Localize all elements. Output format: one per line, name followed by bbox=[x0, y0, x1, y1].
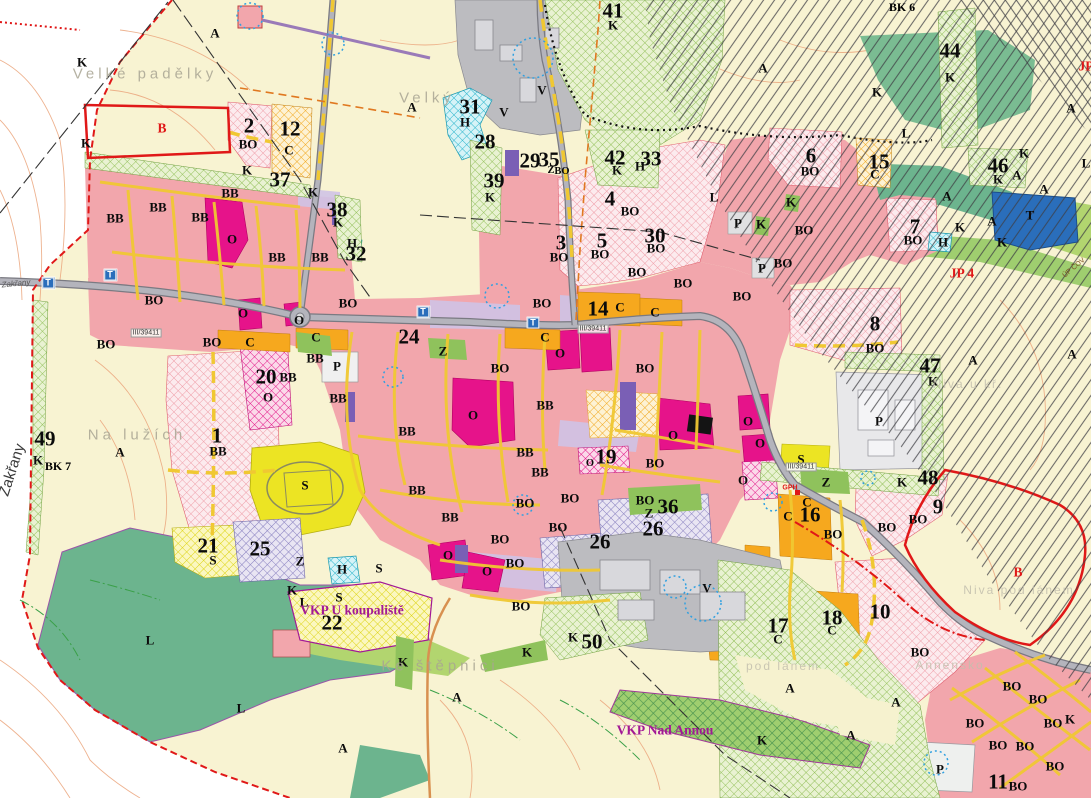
map-label-jp: JP bbox=[1079, 59, 1091, 73]
map-label-bo: BO bbox=[533, 297, 552, 310]
map-label-z: Z bbox=[547, 166, 554, 177]
map-label-bo: BO bbox=[795, 224, 814, 237]
map-label-bo: BO bbox=[866, 342, 885, 355]
map-label-bo: BO bbox=[550, 251, 569, 264]
map-label-jp-4: JP 4 bbox=[950, 266, 974, 280]
map-label-k: K bbox=[786, 196, 796, 209]
map-label-vkp-nad-annou: VKP Nad Annou bbox=[617, 723, 714, 737]
map-label-bb: BB bbox=[329, 392, 346, 405]
map-label-c: C bbox=[802, 496, 811, 509]
map-label-12: 12 bbox=[280, 119, 301, 140]
map-label-c: C bbox=[870, 168, 879, 181]
map-label-bb: BB bbox=[516, 446, 533, 459]
map-label-bb: BB bbox=[149, 201, 166, 214]
map-label-s: S bbox=[209, 554, 216, 567]
map-label-k: K bbox=[1065, 713, 1075, 726]
map-label-k: K bbox=[612, 164, 622, 177]
map-label-bo: BO bbox=[1029, 693, 1048, 706]
map-label-c: C bbox=[827, 624, 836, 637]
map-label-bo: BO bbox=[904, 234, 923, 247]
map-label-a: A bbox=[987, 215, 996, 228]
map-label-bb: BB bbox=[306, 352, 323, 365]
map-label-49: 49 bbox=[35, 429, 56, 450]
map-label-bo: BO bbox=[636, 362, 655, 375]
map-label-a: A bbox=[846, 729, 855, 742]
map-label-c: C bbox=[773, 633, 782, 646]
map-label-c: C bbox=[540, 331, 549, 344]
map-label-k: K bbox=[608, 19, 618, 32]
map-label-k: K bbox=[333, 216, 343, 229]
map-label-bb: BB bbox=[221, 187, 238, 200]
map-label-o: O bbox=[238, 307, 248, 320]
map-label-t: T bbox=[1026, 209, 1035, 222]
map-label-37: 37 bbox=[270, 170, 291, 191]
map-label-niva-u-kř-: Niva u kř. bbox=[933, 378, 1004, 390]
map-label-bo: BO bbox=[1044, 717, 1063, 730]
map-label-14: 14 bbox=[588, 299, 609, 320]
map-label-z: Z bbox=[822, 476, 831, 489]
map-label-a: A bbox=[968, 354, 977, 367]
map-label-p: P bbox=[936, 763, 944, 776]
map-label-k: K bbox=[756, 218, 766, 231]
map-label-velké-padělky: Velké padělky bbox=[73, 67, 218, 82]
map-label-o: O bbox=[738, 474, 748, 487]
map-label-11: 11 bbox=[988, 772, 1008, 793]
map-label-a: A bbox=[785, 682, 794, 695]
map-label-39: 39 bbox=[484, 171, 505, 192]
map-label-bb: BB bbox=[408, 484, 425, 497]
map-label-2: 2 bbox=[244, 116, 255, 137]
map-label-h: H bbox=[460, 116, 470, 129]
map-label-bb: BB bbox=[311, 251, 328, 264]
map-label-na-lužích: Na lužích bbox=[88, 428, 187, 443]
map-label-k: K bbox=[1019, 147, 1029, 160]
map-label-bo: BO bbox=[491, 533, 510, 546]
map-label-bo: BO bbox=[145, 294, 164, 307]
map-label-k: K bbox=[757, 734, 767, 747]
map-label-bo: BO bbox=[966, 717, 985, 730]
map-label-k: K bbox=[287, 584, 297, 597]
map-label-l: L bbox=[1082, 157, 1091, 170]
map-label-k: K bbox=[945, 71, 955, 84]
map-label-26: 26 bbox=[643, 519, 664, 540]
map-label-h: H bbox=[938, 236, 948, 249]
map-label-bo: BO bbox=[491, 362, 510, 375]
map-label-t: T bbox=[527, 318, 539, 329]
map-label-bb: BB bbox=[191, 211, 208, 224]
map-label-a: A bbox=[1039, 183, 1048, 196]
map-label-bk-7: BK 7 bbox=[45, 460, 71, 472]
map-label-bo: BO bbox=[1046, 760, 1065, 773]
map-label-s: S bbox=[301, 479, 308, 492]
map-label-bo: BO bbox=[647, 242, 666, 255]
map-label-bo: BO bbox=[1016, 740, 1035, 753]
map-label-c: C bbox=[245, 336, 254, 349]
map-label-o: O bbox=[227, 233, 237, 246]
map-label-9: 9 bbox=[933, 497, 944, 518]
map-label-bo: BO bbox=[801, 165, 820, 178]
map-label-bo: BO bbox=[989, 739, 1008, 752]
map-label-p: P bbox=[875, 415, 883, 428]
map-label-o: O bbox=[468, 409, 478, 422]
map-label-p: P bbox=[758, 262, 766, 275]
map-label-bo: BO bbox=[97, 338, 116, 351]
map-label-bo: BO bbox=[824, 528, 843, 541]
map-label-26: 26 bbox=[590, 532, 611, 553]
map-label-iii-39411: III/39411 bbox=[578, 325, 609, 334]
map-label-s: S bbox=[375, 562, 382, 575]
map-label-k: K bbox=[485, 191, 495, 204]
map-label-ke-štěpnici: Ke štěpnici bbox=[381, 659, 498, 674]
map-label-k: K bbox=[897, 476, 907, 489]
map-label-iii-39411: III/39411 bbox=[131, 329, 162, 338]
map-label-z: Z bbox=[645, 507, 654, 520]
map-label-p: P bbox=[734, 217, 742, 230]
map-label-bo: BO bbox=[591, 248, 610, 261]
map-label-bo: BO bbox=[621, 205, 640, 218]
map-label-l: L bbox=[710, 191, 719, 204]
map-label-velký: Velký bbox=[399, 91, 455, 106]
map-label-k: K bbox=[33, 454, 43, 467]
map-label-a: A bbox=[891, 696, 900, 709]
map-label-a: A bbox=[1066, 102, 1075, 115]
map-label-bo: BO bbox=[646, 457, 665, 470]
map-label-bo: BO bbox=[909, 513, 928, 526]
map-label-o: O bbox=[263, 391, 273, 404]
map-label-c: C bbox=[311, 331, 320, 344]
map-label-bo: BO bbox=[339, 297, 358, 310]
map-label-v: V bbox=[537, 84, 546, 97]
map-label-k: K bbox=[522, 646, 532, 659]
map-label-28: 28 bbox=[475, 132, 496, 153]
map-label-t: T bbox=[104, 270, 116, 281]
map-label-z: Z bbox=[439, 345, 448, 358]
map-label-bb: BB bbox=[106, 212, 123, 225]
map-label-v: V bbox=[499, 106, 508, 119]
map-label-k: K bbox=[242, 164, 252, 177]
map-label-bo: BO bbox=[512, 600, 531, 613]
map-label-k: K bbox=[568, 631, 578, 644]
map-label-l: L bbox=[237, 702, 246, 715]
map-label-a: A bbox=[115, 446, 124, 459]
map-label-l: L bbox=[902, 127, 911, 140]
map-label-29: 29 bbox=[520, 151, 541, 172]
map-label-o: O bbox=[555, 347, 565, 360]
map-label-bb: BB bbox=[531, 466, 548, 479]
map-label-19: 19 bbox=[596, 447, 617, 468]
map-label-c: C bbox=[783, 510, 792, 523]
map-label-bb: BB bbox=[398, 425, 415, 438]
map-label-úp-čov: ÚP ČOV bbox=[1062, 257, 1087, 280]
map-label-annensko: Annensko bbox=[915, 659, 984, 671]
map-label-a: A bbox=[1012, 169, 1021, 182]
map-label-bo: BO bbox=[203, 336, 222, 349]
map-label-k: K bbox=[997, 236, 1007, 249]
map-label-bo: BO bbox=[239, 138, 258, 151]
map-label-t: T bbox=[417, 307, 429, 318]
map-label-a: A bbox=[1067, 348, 1076, 361]
map-label-k: K bbox=[81, 137, 91, 150]
map-label-bo: BO bbox=[506, 557, 525, 570]
map-label-c: C bbox=[284, 144, 293, 157]
map-label-zakřany: Zakřany bbox=[0, 442, 28, 498]
map-label-bo: BO bbox=[561, 492, 580, 505]
map-label-p: P bbox=[333, 360, 341, 373]
map-label-bb: BB bbox=[536, 399, 553, 412]
map-label-a: A bbox=[338, 742, 347, 755]
map-label-k: K bbox=[993, 173, 1003, 186]
map-labels: 1234567891011121415161718192021222425262… bbox=[0, 0, 1091, 798]
map-label-bb: BB bbox=[441, 511, 458, 524]
map-label-l: L bbox=[146, 634, 155, 647]
map-label-o: O bbox=[482, 565, 492, 578]
map-label-20: 20 bbox=[256, 367, 277, 388]
map-label-a: A bbox=[942, 190, 951, 203]
map-label-bk-6: BK 6 bbox=[889, 1, 915, 13]
map-label-z: Z bbox=[296, 555, 305, 568]
map-label-bb: BB bbox=[279, 371, 296, 384]
map-label-8: 8 bbox=[870, 314, 881, 335]
map-label-bo: BO bbox=[674, 277, 693, 290]
zoning-map: 1234567891011121415161718192021222425262… bbox=[0, 0, 1091, 798]
map-label-a: A bbox=[210, 27, 219, 40]
map-label-iii-39411: III/39411 bbox=[786, 463, 817, 472]
map-label-a: A bbox=[452, 691, 461, 704]
map-label-50: 50 bbox=[582, 632, 603, 653]
map-label-48: 48 bbox=[918, 468, 939, 489]
map-label-k: K bbox=[308, 186, 318, 199]
map-label-bo: BO bbox=[1003, 680, 1022, 693]
map-label-o: O bbox=[755, 437, 765, 450]
map-label-o: O bbox=[668, 429, 678, 442]
map-label-o: O bbox=[586, 459, 594, 470]
map-label-bo: BO bbox=[911, 646, 930, 659]
map-label-pod-lánem: pod lánem bbox=[746, 660, 820, 672]
map-label-4: 4 bbox=[605, 189, 616, 210]
map-label-h: H bbox=[337, 563, 347, 576]
map-label-niva-pod-lánem: Niva pod lánem bbox=[963, 584, 1074, 596]
map-label-b: B bbox=[157, 121, 166, 135]
map-label-44: 44 bbox=[940, 41, 961, 62]
map-label-o: O bbox=[294, 314, 304, 327]
map-label-bo: BO bbox=[774, 257, 793, 270]
map-label-bo: BO bbox=[628, 266, 647, 279]
map-label-zakřany: Zakřany bbox=[1, 279, 31, 290]
map-label-bb: BB bbox=[209, 445, 226, 458]
map-label-bo: BO bbox=[878, 521, 897, 534]
map-label-bo: BO bbox=[733, 290, 752, 303]
map-label-h: H bbox=[347, 237, 357, 250]
map-label-v: V bbox=[702, 582, 711, 595]
map-label-a: A bbox=[758, 62, 767, 75]
map-label-bo: BO bbox=[516, 497, 535, 510]
map-label-t: T bbox=[42, 278, 54, 289]
map-label-vkp-u-koupaliště: VKP U koupaliště bbox=[300, 603, 404, 617]
map-label-gph: GPH bbox=[782, 485, 797, 492]
map-label-bb: BB bbox=[268, 251, 285, 264]
map-label-bo: BO bbox=[549, 521, 568, 534]
map-label-o: O bbox=[743, 415, 753, 428]
map-label-k: K bbox=[955, 221, 965, 234]
map-label-c: C bbox=[650, 306, 659, 319]
map-label-25: 25 bbox=[250, 539, 271, 560]
map-label-h: H bbox=[635, 160, 645, 173]
map-label-b: B bbox=[1013, 565, 1022, 579]
map-label-k: K bbox=[872, 86, 882, 99]
map-label-10: 10 bbox=[870, 602, 891, 623]
map-label-24: 24 bbox=[399, 327, 420, 348]
map-label-bo: BO bbox=[1009, 780, 1028, 793]
map-label-c: C bbox=[615, 301, 624, 314]
map-label-bo: BO bbox=[554, 167, 569, 178]
map-label-o: O bbox=[443, 549, 453, 562]
map-label-36: 36 bbox=[658, 497, 679, 518]
